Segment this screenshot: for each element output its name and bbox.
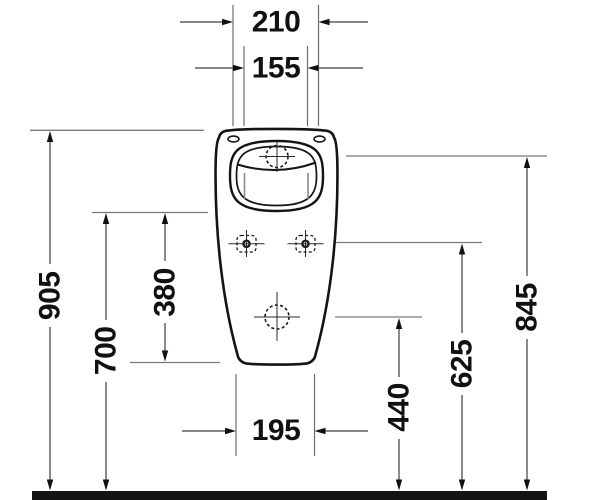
dim-195-label: 195 [252, 414, 301, 447]
dim-845-arrow-bottom [524, 480, 530, 491]
dim-845-arrow-top [524, 157, 530, 168]
dim-155-label: 155 [252, 52, 301, 85]
dim-155-arrow-right [308, 65, 319, 72]
dim-845-label: 845 [511, 283, 544, 332]
dimension-195: 195 [182, 414, 368, 447]
dim-155-arrow-left [233, 65, 244, 72]
urinal-dimension-drawing: 210 155 195 905 700 380 [0, 0, 600, 500]
dim-195-arrow-right [315, 428, 326, 435]
top-left-oval-hole [228, 136, 239, 142]
dimension-905: 905 [34, 131, 67, 491]
dimension-845: 845 [511, 157, 544, 491]
dim-625-label: 625 [446, 340, 479, 389]
floor-line [32, 491, 547, 500]
dimension-440: 440 [383, 318, 416, 491]
dim-380-label: 380 [149, 268, 182, 317]
dimension-625: 625 [446, 244, 479, 491]
dim-700-arrow-top [103, 213, 109, 224]
dimension-700: 700 [90, 213, 123, 491]
dim-210-arrow-right [319, 19, 330, 26]
dim-380-arrow-bottom [162, 351, 168, 362]
dimension-380: 380 [149, 213, 182, 362]
dim-440-arrow-top [396, 318, 402, 329]
top-right-oval-hole [314, 136, 325, 142]
urinal-body [216, 129, 338, 365]
technical-drawing-canvas: 210 155 195 905 700 380 [0, 0, 600, 500]
dim-700-label: 700 [90, 327, 123, 376]
dimension-210: 210 [180, 6, 368, 39]
dim-700-arrow-bottom [103, 480, 109, 491]
dim-440-label: 440 [383, 383, 416, 432]
dimension-155: 155 [195, 52, 363, 85]
dim-195-arrow-left [225, 428, 236, 435]
dim-210-label: 210 [252, 6, 301, 39]
dim-210-arrow-left [222, 19, 233, 26]
dim-905-arrow-bottom [47, 480, 53, 491]
dim-905-label: 905 [34, 272, 67, 321]
dim-625-arrow-top [459, 244, 465, 255]
dim-440-arrow-bottom [396, 480, 402, 491]
dim-625-arrow-bottom [459, 480, 465, 491]
dim-380-arrow-top [162, 213, 168, 224]
dim-905-arrow-top [47, 131, 53, 142]
